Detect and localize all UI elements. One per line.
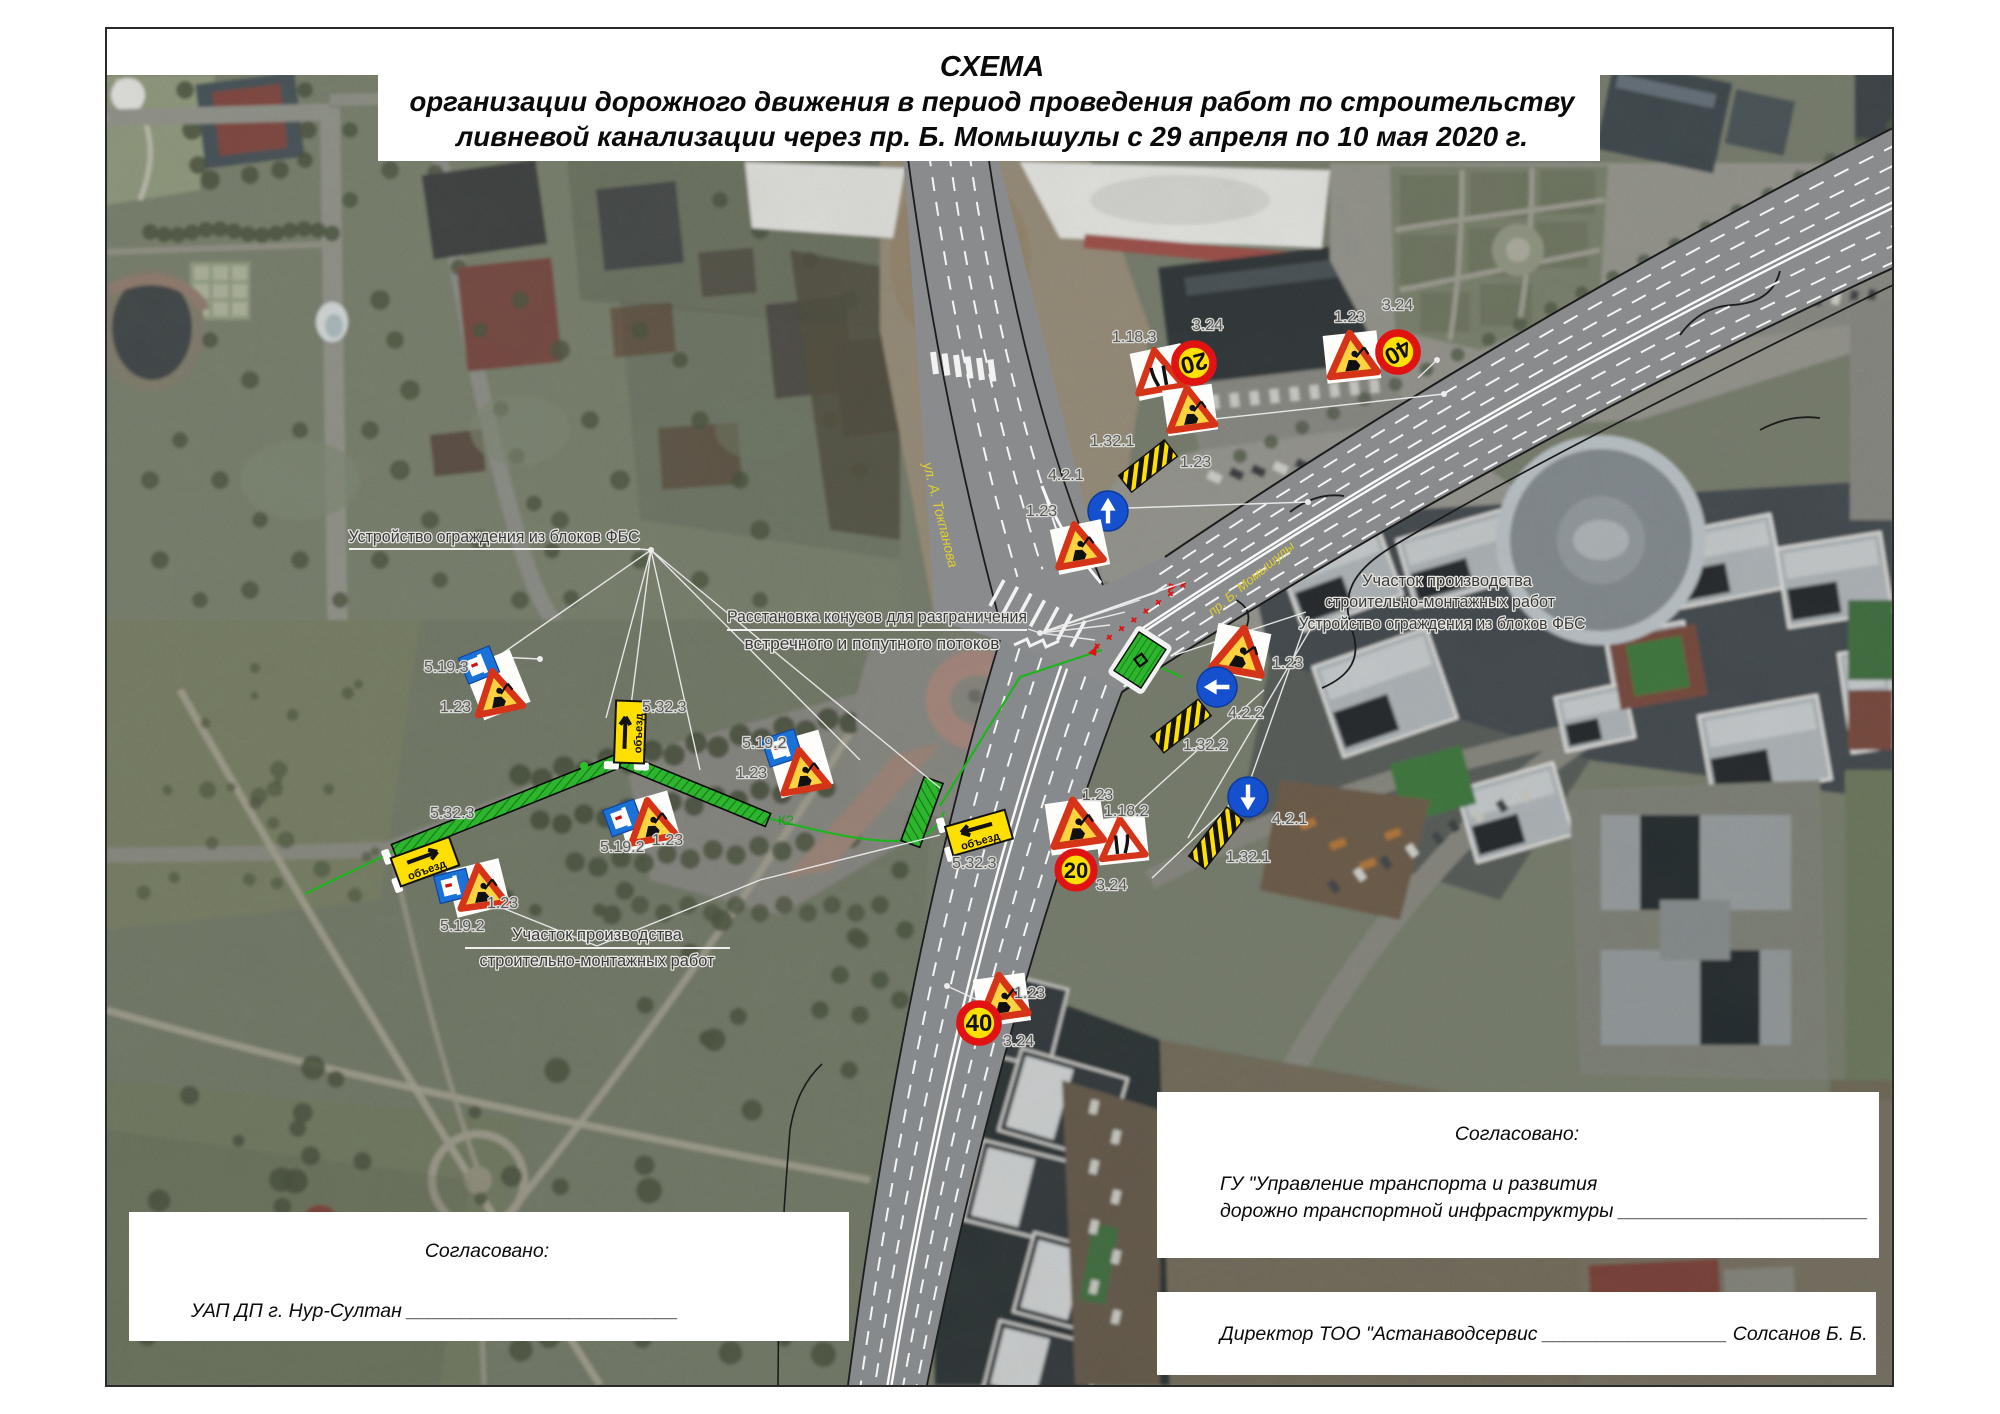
svg-text:УАП ДП г. Нур-Султан _________: УАП ДП г. Нур-Султан ___________________…	[190, 1300, 678, 1322]
svg-text:1.32.2: 1.32.2	[1183, 737, 1228, 754]
svg-text:5.32.3: 5.32.3	[430, 805, 475, 822]
svg-text:дорожно транспортной инфрастру: дорожно транспортной инфраструктуры ____…	[1220, 1200, 1868, 1222]
svg-text:1.23: 1.23	[1272, 655, 1303, 672]
svg-text:4.2.1: 4.2.1	[1048, 467, 1084, 484]
svg-text:1.32.1: 1.32.1	[1226, 849, 1271, 866]
svg-text:20: 20	[1064, 858, 1088, 883]
svg-text:1.23: 1.23	[736, 765, 767, 782]
svg-text:Расстановка конусов для разгра: Расстановка конусов для разграничения	[727, 607, 1027, 626]
svg-text:1.18.2: 1.18.2	[1104, 803, 1149, 820]
svg-text:ГУ "Управление транспорта и ра: ГУ "Управление транспорта и развития	[1220, 1173, 1598, 1195]
svg-text:встречного и попутного потоков: встречного и попутного потоков	[745, 634, 1000, 653]
svg-text:объезд: объезд	[632, 713, 645, 753]
svg-text:Устройство ограждения из блоко: Устройство ограждения из блоков ФБС	[1299, 614, 1586, 633]
svg-text:1.23: 1.23	[440, 699, 471, 716]
svg-text:Устройство ограждения из блоко: Устройство ограждения из блоков ФБС	[349, 527, 640, 546]
svg-text:строительно-монтажных работ: строительно-монтажных работ	[480, 951, 715, 970]
svg-text:40: 40	[966, 1010, 993, 1037]
svg-text:3.24: 3.24	[1382, 297, 1413, 314]
svg-text:1.23: 1.23	[1180, 454, 1211, 471]
svg-text:5.19.2: 5.19.2	[600, 839, 645, 856]
svg-text:1.23: 1.23	[1334, 309, 1365, 326]
svg-text:Участок производства: Участок производства	[512, 925, 683, 944]
svg-text:4.2.2: 4.2.2	[1228, 705, 1264, 722]
svg-text:1.18.3: 1.18.3	[1112, 329, 1157, 346]
svg-text:ливневой канализации через пр.: ливневой канализации через пр. Б. Момышу…	[454, 121, 1528, 152]
svg-text:1.23: 1.23	[487, 895, 518, 912]
svg-text:1.23: 1.23	[652, 832, 683, 849]
svg-text:1.23: 1.23	[1082, 787, 1113, 804]
svg-text:3.24: 3.24	[1192, 317, 1223, 334]
svg-text:1.23: 1.23	[1014, 985, 1045, 1002]
svg-text:5.19.3: 5.19.3	[424, 659, 469, 676]
svg-text:строительно-монтажных работ: строительно-монтажных работ	[1325, 592, 1555, 611]
svg-text:К2: К2	[778, 812, 794, 828]
svg-text:3.24: 3.24	[1096, 877, 1127, 894]
svg-text:Участок производства: Участок производства	[1362, 571, 1533, 590]
svg-text:5.32.3: 5.32.3	[642, 699, 687, 716]
svg-text:Согласовано:: Согласовано:	[425, 1240, 549, 1262]
svg-text:1.23: 1.23	[1026, 503, 1057, 520]
svg-text:4.2.1: 4.2.1	[1272, 811, 1308, 828]
svg-text:1.32.1: 1.32.1	[1090, 433, 1135, 450]
svg-text:3.24: 3.24	[1003, 1033, 1034, 1050]
svg-text:организации дорожного движения: организации дорожного движения в период …	[410, 86, 1576, 117]
svg-text:Директор ТОО "Астанаводсервис: Директор ТОО "Астанаводсервис __________…	[1218, 1323, 1868, 1345]
svg-text:СХЕМА: СХЕМА	[940, 51, 1044, 83]
svg-text:Согласовано:: Согласовано:	[1455, 1123, 1579, 1145]
svg-text:5.19.2: 5.19.2	[742, 735, 787, 752]
svg-text:5.19.2: 5.19.2	[440, 918, 485, 935]
svg-text:5.32.3: 5.32.3	[952, 855, 997, 872]
